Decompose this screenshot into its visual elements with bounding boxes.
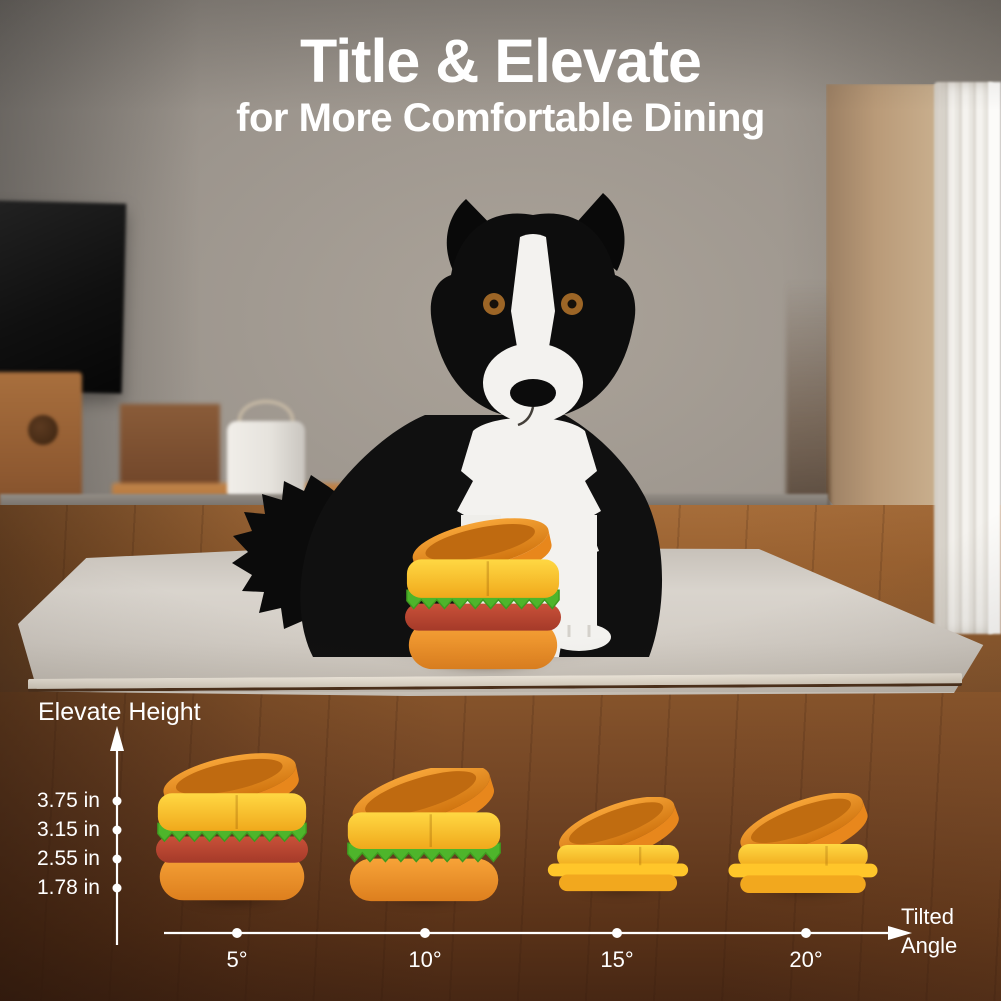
- burger-bowl-15deg-icon: [544, 797, 692, 893]
- y-tick-1.78: 1.78 in: [24, 876, 100, 900]
- x-axis-label-line2: Angle: [901, 931, 957, 960]
- y-tick-3.15: 3.15 in: [24, 818, 100, 842]
- hamburger-elevated-bowl-hero: [399, 517, 567, 673]
- y-axis-label: Elevate Height: [38, 698, 201, 727]
- product-infographic: Title & Elevate for More Comfortable Din…: [0, 0, 1001, 1001]
- dog-nose: [510, 379, 556, 407]
- x-axis-label-line1: Tilted: [901, 902, 957, 931]
- x-axis-label: Tilted Angle: [901, 902, 957, 960]
- x-tick-5deg: 5°: [215, 947, 259, 973]
- burger-bowl-10deg-icon: [342, 768, 506, 903]
- dog-pupil-right: [568, 300, 577, 309]
- wooden-box: [120, 404, 220, 488]
- burger-bowl-5deg-icon: [152, 752, 312, 904]
- headline: Title & Elevate for More Comfortable Din…: [0, 28, 1001, 140]
- drawer-handle: [28, 415, 58, 445]
- dog-pupil-left: [490, 300, 499, 309]
- burger-bowl-20deg-icon: [724, 793, 882, 895]
- y-tick-3.75: 3.75 in: [24, 789, 100, 813]
- page-title: Title & Elevate: [0, 28, 1001, 94]
- tv-screen: [0, 200, 126, 393]
- sheer-curtain: [934, 82, 994, 634]
- x-tick-20deg: 20°: [784, 947, 828, 973]
- x-tick-15deg: 15°: [595, 947, 639, 973]
- y-tick-2.55: 2.55 in: [24, 847, 100, 871]
- window-light: [988, 82, 1001, 634]
- x-tick-10deg: 10°: [403, 947, 447, 973]
- page-subtitle: for More Comfortable Dining: [0, 96, 1001, 140]
